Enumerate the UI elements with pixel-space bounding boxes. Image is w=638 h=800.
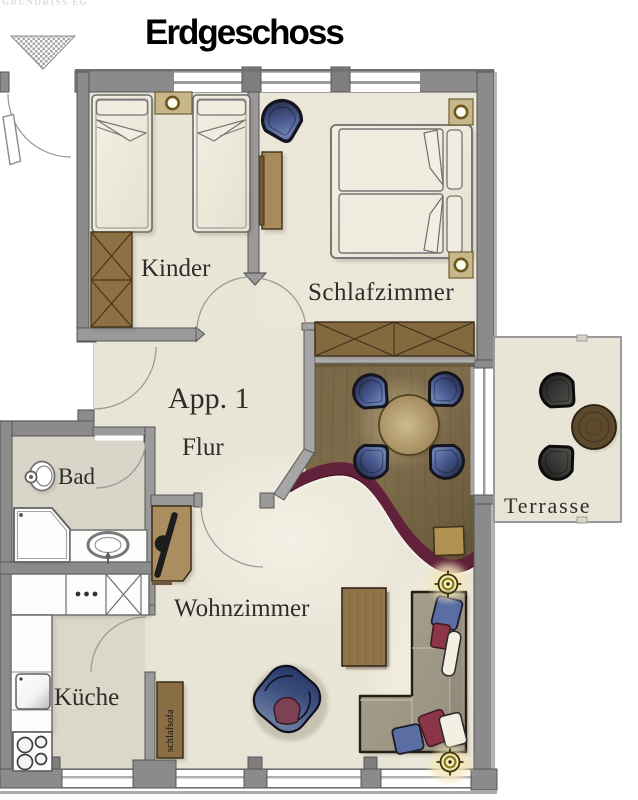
svg-text:schlafsofa: schlafsofa xyxy=(165,709,176,752)
svg-text:Kinder: Kinder xyxy=(141,255,211,282)
svg-text:Erdgeschoss: Erdgeschoss xyxy=(145,13,344,52)
svg-text:GRUNDRISS EG: GRUNDRISS EG xyxy=(2,0,88,7)
svg-text:Bad: Bad xyxy=(58,464,96,489)
svg-text:Flur: Flur xyxy=(182,434,224,461)
svg-text:Terrasse: Terrasse xyxy=(504,493,591,518)
svg-text:App. 1: App. 1 xyxy=(168,382,250,415)
svg-text:Küche: Küche xyxy=(54,684,119,711)
svg-text:Schlafzimmer: Schlafzimmer xyxy=(308,279,454,306)
svg-text:Wohnzimmer: Wohnzimmer xyxy=(174,595,310,622)
